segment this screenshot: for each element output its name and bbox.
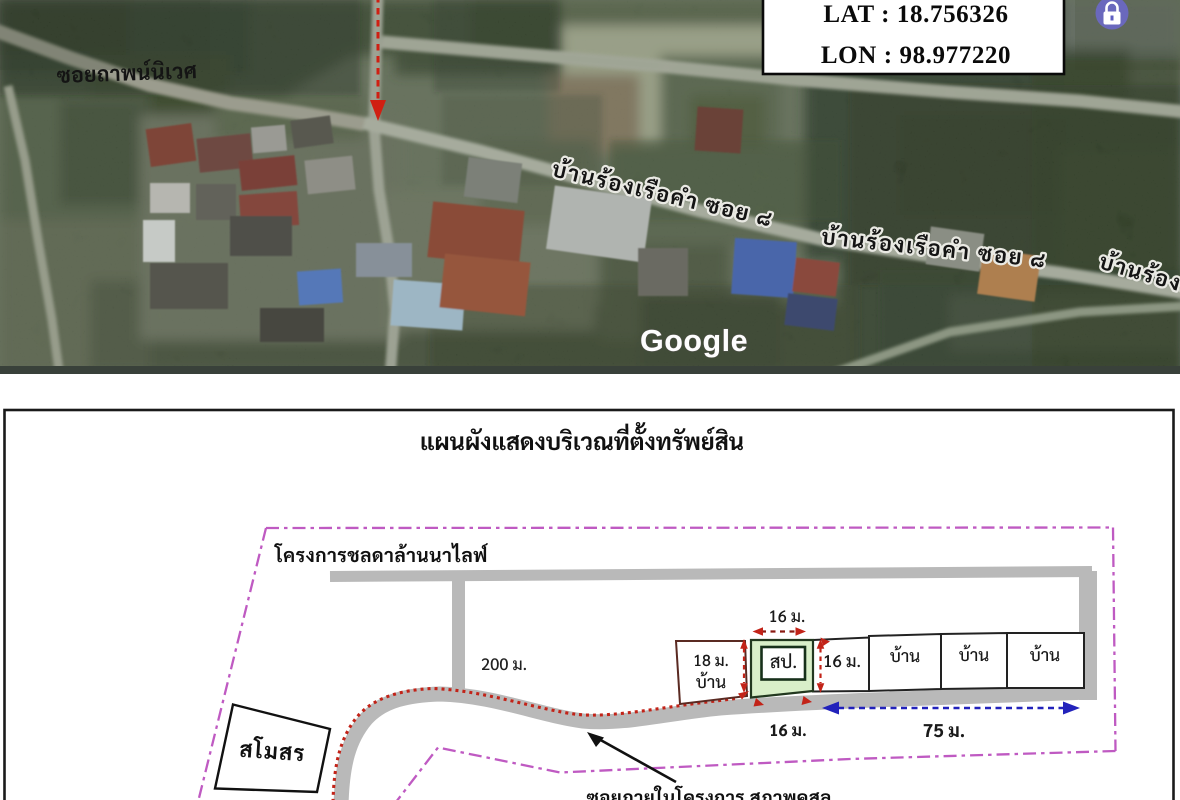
svg-text:LON : 98.977220: LON : 98.977220	[821, 42, 1011, 69]
svg-text:LAT : 18.756326: LAT : 18.756326	[823, 1, 1008, 28]
svg-text:Google: Google	[640, 324, 748, 358]
